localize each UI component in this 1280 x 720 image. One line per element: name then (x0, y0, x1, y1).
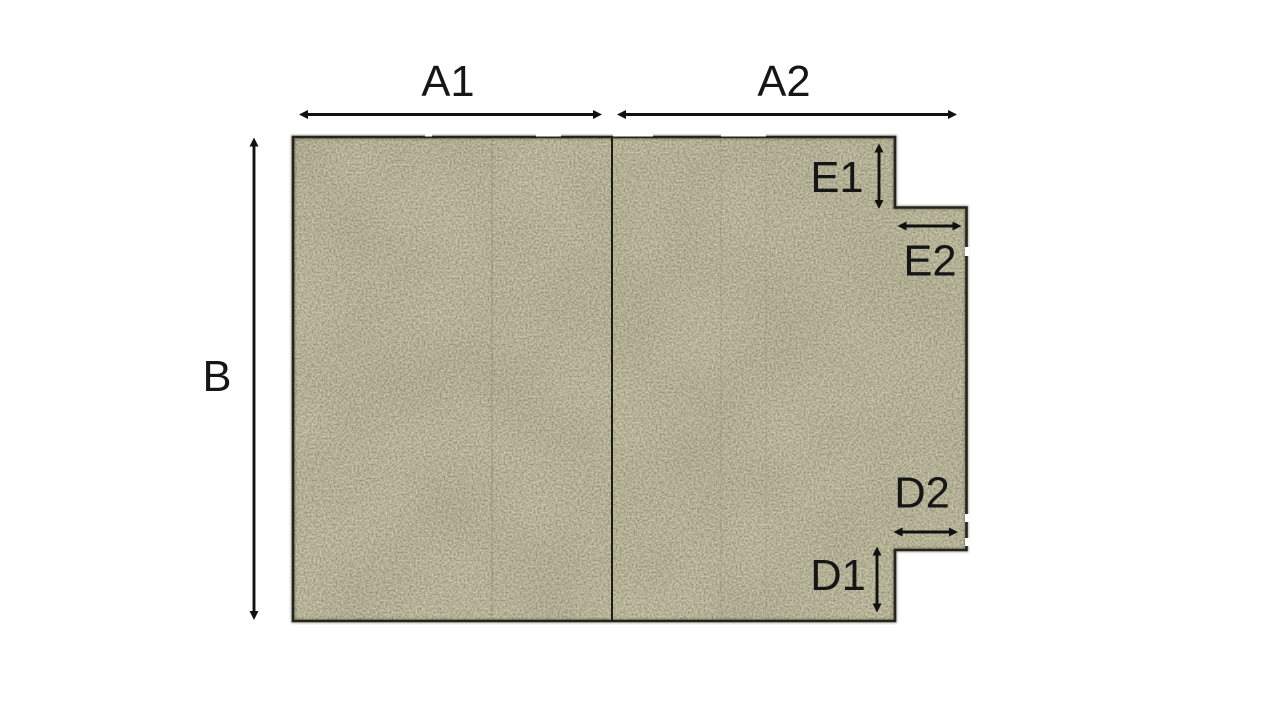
svg-text:E1: E1 (810, 154, 863, 202)
svg-text:B: B (202, 353, 231, 401)
svg-text:D1: D1 (810, 552, 866, 600)
svg-text:E2: E2 (903, 238, 956, 286)
svg-text:A1: A1 (421, 58, 474, 106)
svg-text:A2: A2 (757, 58, 810, 106)
svg-text:D2: D2 (894, 470, 950, 518)
